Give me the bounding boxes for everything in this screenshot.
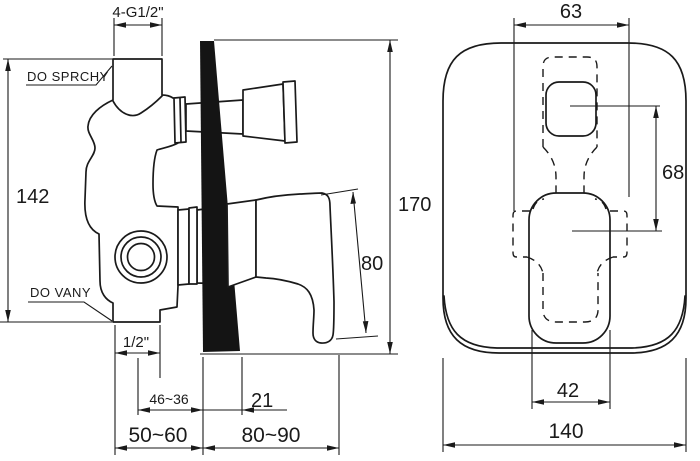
dim-height-142: 142 [16, 186, 49, 208]
diverter-knob-cap [283, 81, 297, 143]
dim-plate-width-140: 140 [548, 420, 583, 443]
outlet-boss-inner [128, 244, 155, 271]
diverter-flange-edge [180, 98, 181, 142]
side-view-mixer-body [85, 41, 334, 352]
dim-thread-top: 4-G1/2" [112, 4, 163, 21]
dim-width-63: 63 [560, 1, 582, 23]
label-to-bath: DO VANY [30, 285, 91, 300]
dim-overall-height-170: 170 [398, 194, 431, 216]
label-to-shower: DO SPRCHY [27, 69, 109, 84]
dim-thread-bottom: 1/2" [123, 334, 149, 351]
dim-recess-50-60: 50~60 [129, 424, 188, 447]
lever-flange-a [178, 209, 189, 285]
lever-cone [227, 200, 256, 287]
diverter-knob-front [546, 82, 596, 136]
dim-protrusion-80-90: 80~90 [242, 424, 301, 447]
dim-centres-68: 68 [662, 162, 684, 184]
diverter-knob [243, 84, 285, 141]
wall-section [200, 41, 240, 352]
dim-offset-21: 21 [251, 390, 273, 412]
drawing-canvas: 4-G1/2" 142 DO SPRCHY DO VANY 1/2" 170 8… [0, 0, 700, 461]
dim-lever-width-42: 42 [557, 380, 579, 402]
lever-flange-b [189, 207, 197, 284]
mixer-installation-drawing: 4-G1/2" 142 DO SPRCHY DO VANY 1/2" 170 8… [0, 0, 700, 461]
lever-handle-side [256, 193, 334, 343]
mixer-body-outline [85, 59, 178, 322]
front-view-trim-plate [443, 43, 686, 353]
dim-depth-46-36: 46~36 [149, 391, 189, 407]
dim-handle-height-80: 80 [361, 253, 383, 275]
